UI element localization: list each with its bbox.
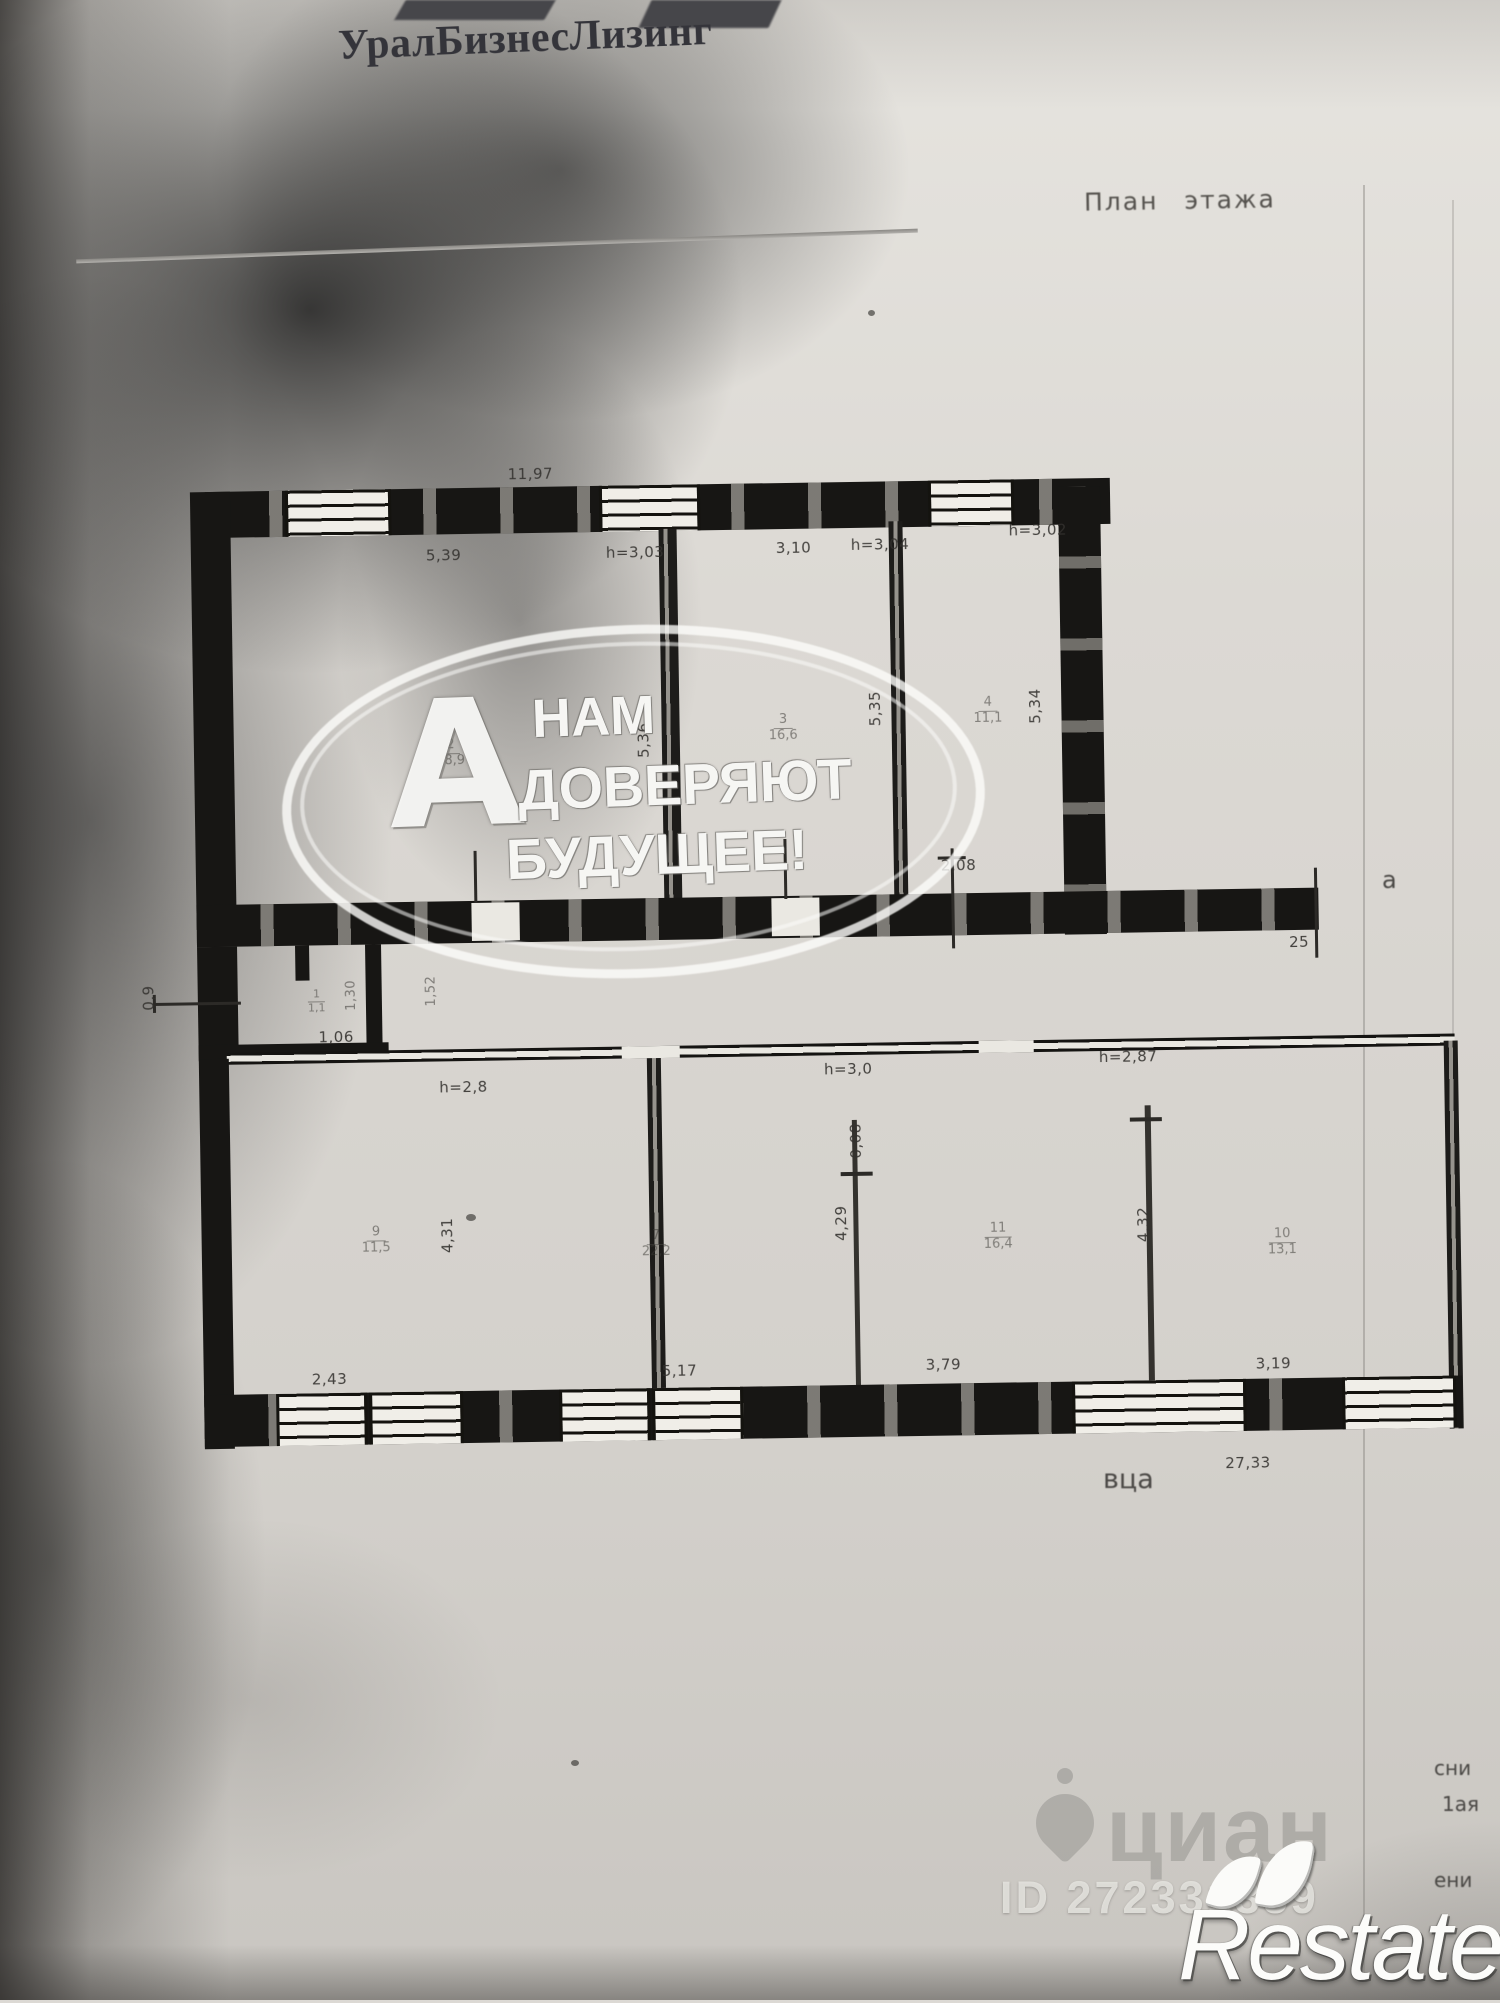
dim-roomB-depth: 4,29 [832,1205,851,1241]
dim-entry-2: 1,52 [423,975,438,1006]
window [652,1387,744,1440]
dim-entry-width: 1,06 [318,1028,354,1047]
restate-logo: Restate [1178,1888,1500,2003]
roomD-number: 10 [1269,1227,1296,1243]
room4-number: 4 [979,696,998,712]
floor-plan: 11,97 5,39 h=3,03 3,10 h=3,04 h=3,02 2 2… [190,450,1486,1520]
floor-plan-title: План этажа [1084,184,1276,216]
entry-label: 1 1,1 [308,988,326,1015]
roomD-label: 10 13,1 [1268,1227,1297,1258]
dim-roomA-depth: 4,31 [438,1218,457,1254]
scan-speck [571,1760,579,1766]
dim-entry-1: 1,30 [344,980,359,1011]
wall-left-upper [190,492,237,948]
wall-left-lower [199,1059,235,1449]
wall-bottom-exterior [204,1375,1463,1447]
dim-lower-height-1: h=2,8 [439,1078,488,1097]
roomA-number: 9 [367,1225,386,1241]
dim-lower-height-3: h=2,87 [1099,1047,1158,1066]
entry-area: 1,1 [308,1002,326,1015]
scan-speck [868,310,875,316]
dim-tick [1130,1117,1162,1122]
dim-room4-height: h=3,02 [1008,521,1067,540]
watermark-line-2: ДОВЕРЯЮТ [517,746,853,824]
dim-lower-height-2: h=3,0 [824,1060,873,1079]
roomC-area: 16,4 [984,1237,1013,1252]
room4-label: 4 11,1 [973,696,1002,727]
dim-overall-bottom: 27,33 [1225,1453,1271,1472]
entry-number: 1 [308,988,325,1002]
dim-room2-width: 5,39 [426,546,462,565]
dim-thin-partition: 0,08 [847,1123,866,1159]
dim-overall-top: 11,97 [507,465,553,484]
window [1342,1376,1457,1430]
watermark-line-3: БУДУЩЕЕ! [505,817,809,893]
window [276,1393,368,1446]
roomA-label: 9 11,5 [361,1225,390,1256]
roomC-number: 11 [985,1222,1012,1238]
door-opening [979,1040,1034,1053]
roomB-area: 22,2 [642,1245,671,1260]
dim-roomC-depth: 4,32 [1134,1207,1153,1243]
dim-tick [841,1172,873,1177]
wall-right-lower [1444,1040,1464,1428]
wall-right-upper [1058,486,1107,935]
dim-room3-width: 3,10 [776,539,812,558]
scanned-floor-plan-photo: { "header": { "company": "УралБизнесЛизи… [0,0,1500,2000]
partition-lower-1 [647,1058,666,1393]
dim-roomD-width: 3,19 [1256,1354,1292,1373]
dim-room4-depth: 5,34 [1026,688,1045,724]
window [599,484,701,532]
window [285,489,392,537]
window [559,1388,651,1441]
text-fragment: сни [1434,1756,1471,1780]
dim-right-extension: 25 [1289,933,1309,951]
text-fragment: вца [1103,1464,1154,1495]
window [928,479,1015,526]
dim-roomB-width: 5,17 [662,1361,698,1380]
room4-area: 11,1 [973,712,1002,727]
wall-entry-stub [295,945,310,980]
text-fragment: а [1382,866,1397,894]
roomA-area: 11,5 [362,1241,391,1256]
dim-room2-height: h=3,03 [606,543,665,562]
roomD-area: 13,1 [1268,1243,1297,1258]
dim-roomC-width: 3,79 [926,1355,962,1374]
watermark-line-1: НАМ [531,684,656,750]
dim-entry-door: 0,9 [139,985,157,1011]
door-opening [622,1046,680,1059]
window [369,1391,464,1444]
roomB-label: 7 22,2 [642,1229,671,1260]
roomC-label: 11 16,4 [983,1221,1012,1252]
cian-pin-dot-icon [1057,1768,1073,1784]
partition-lower-3 [1145,1105,1155,1385]
dim-roomA-width: 2,43 [312,1370,348,1389]
roomB-number: 7 [647,1229,666,1245]
dim-room3-height: h=3,04 [851,535,910,554]
window [1072,1379,1247,1434]
text-fragment: 1ая [1442,1792,1479,1816]
partition-thin-008 [852,1120,861,1390]
